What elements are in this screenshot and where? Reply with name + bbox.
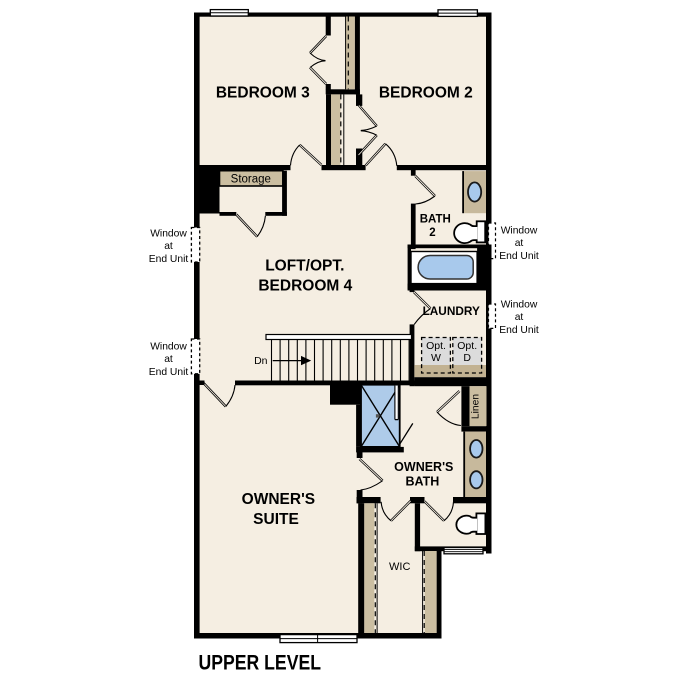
svg-text:at: at [164, 354, 173, 365]
svg-text:SUITE: SUITE [253, 511, 299, 528]
svg-text:at: at [515, 238, 524, 249]
svg-text:Window: Window [150, 229, 187, 240]
svg-text:BATH: BATH [420, 213, 451, 225]
svg-text:Window: Window [501, 226, 538, 237]
svg-text:Dn: Dn [254, 355, 268, 367]
svg-text:Window: Window [150, 342, 187, 353]
svg-text:OWNER'S: OWNER'S [242, 491, 315, 508]
svg-text:End Unit: End Unit [499, 251, 539, 262]
svg-text:UPPER LEVEL: UPPER LEVEL [199, 652, 322, 675]
svg-text:LOFT/OPT.: LOFT/OPT. [265, 258, 344, 275]
svg-text:at: at [164, 241, 173, 252]
svg-text:WIC: WIC [389, 561, 410, 573]
svg-text:Opt.: Opt. [426, 340, 446, 352]
svg-text:End Unit: End Unit [499, 325, 539, 336]
svg-text:LAUNDRY: LAUNDRY [423, 304, 480, 318]
svg-text:BEDROOM 2: BEDROOM 2 [379, 85, 473, 102]
svg-text:End Unit: End Unit [149, 254, 189, 265]
svg-text:Linen: Linen [471, 394, 482, 419]
svg-text:Opt.: Opt. [457, 340, 477, 352]
svg-text:Window: Window [501, 300, 538, 311]
svg-text:at: at [515, 312, 524, 323]
svg-text:D: D [463, 352, 471, 364]
svg-text:Storage: Storage [231, 174, 271, 186]
svg-text:BATH: BATH [406, 475, 440, 489]
svg-text:BEDROOM 4: BEDROOM 4 [258, 278, 352, 295]
svg-text:2: 2 [429, 227, 435, 239]
svg-text:OWNER'S: OWNER'S [394, 460, 453, 474]
svg-text:BEDROOM 3: BEDROOM 3 [216, 85, 310, 102]
svg-text:W: W [431, 352, 441, 364]
svg-text:End Unit: End Unit [149, 367, 189, 378]
